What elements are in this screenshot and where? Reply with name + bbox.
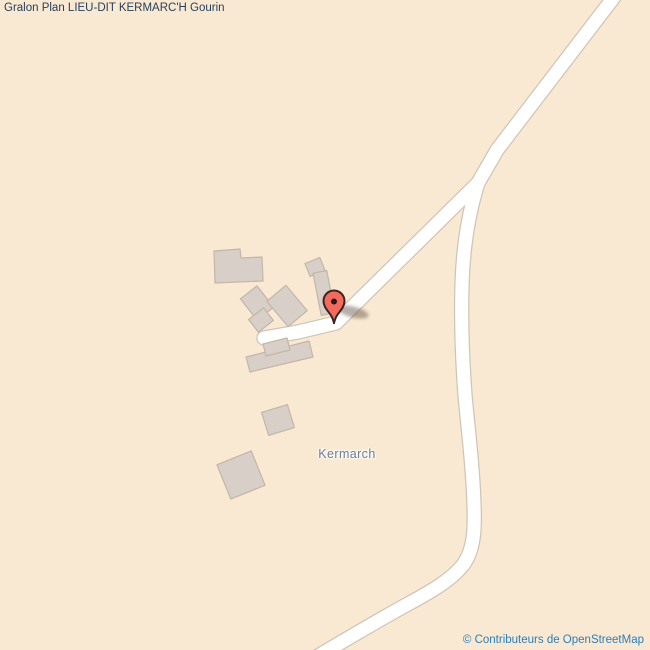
place-label-kermarch: Kermarch xyxy=(287,447,407,461)
attribution-link[interactable]: © Contributeurs de OpenStreetMap xyxy=(463,634,644,646)
page-title: Gralon Plan LIEU-DIT KERMARC'H Gourin xyxy=(4,1,225,15)
pin-center-dot xyxy=(331,299,337,305)
map-viewport[interactable]: Gralon Plan LIEU-DIT KERMARC'H Gourin Ke… xyxy=(0,0,650,650)
